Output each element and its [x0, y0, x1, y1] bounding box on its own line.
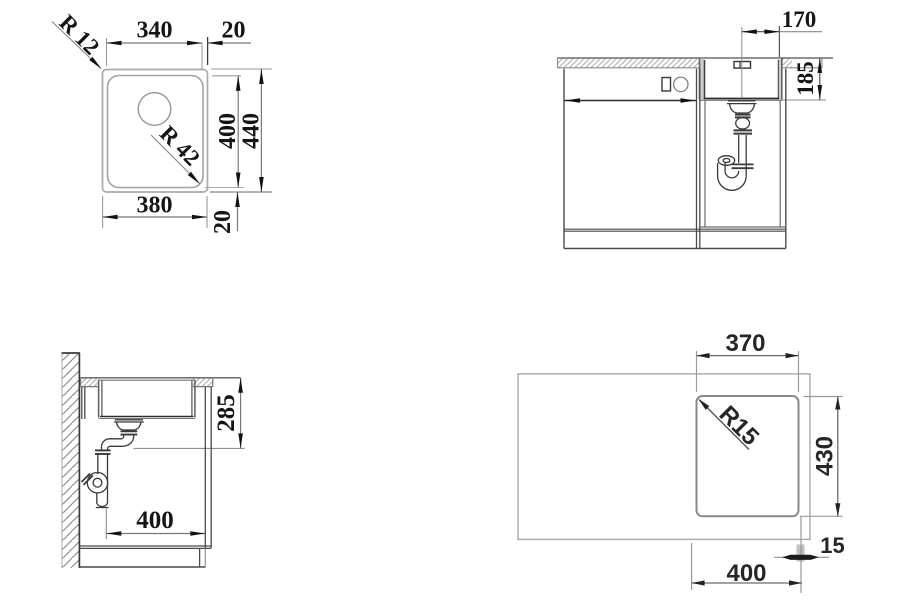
svg-text:400: 400	[136, 507, 174, 534]
svg-text:285: 285	[213, 394, 240, 432]
svg-text:20: 20	[210, 210, 236, 234]
svg-text:R15: R15	[714, 401, 764, 451]
svg-text:185: 185	[793, 61, 818, 96]
svg-text:20: 20	[222, 18, 246, 44]
svg-text:R 42: R 42	[155, 121, 205, 171]
svg-text:15: 15	[820, 533, 844, 558]
svg-text:430: 430	[812, 436, 839, 476]
svg-text:170: 170	[782, 7, 817, 32]
svg-text:R 12: R 12	[54, 10, 104, 60]
svg-text:370: 370	[725, 330, 765, 357]
svg-text:380: 380	[137, 193, 173, 219]
svg-text:340: 340	[137, 18, 173, 44]
svg-text:440: 440	[239, 113, 265, 149]
svg-text:400: 400	[215, 113, 241, 149]
svg-text:400: 400	[726, 560, 766, 587]
